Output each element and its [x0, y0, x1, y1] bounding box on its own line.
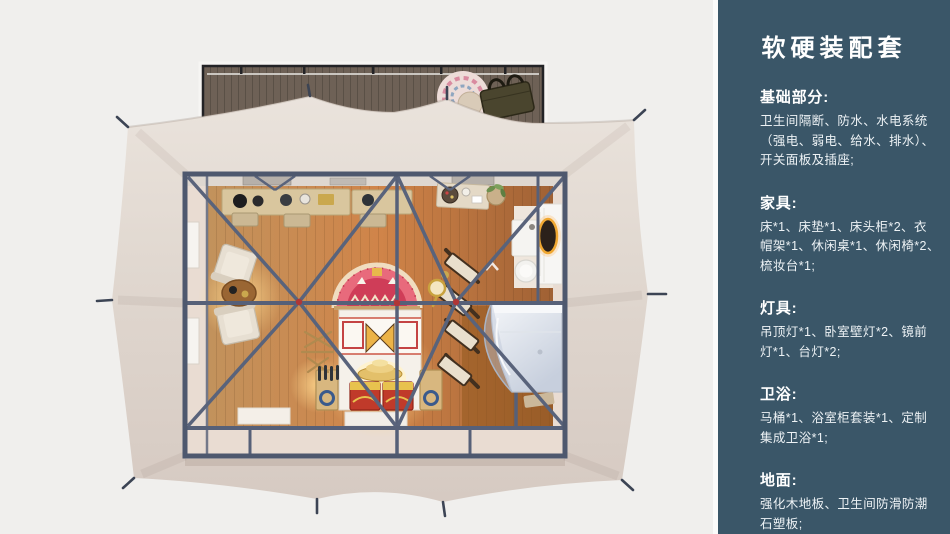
tent-render-svg: [0, 0, 713, 534]
section-text: 强化木地板、卫生间防滑防潮 石塑板;: [760, 495, 932, 534]
section-text: 床*1、床垫*1、床头柜*2、衣 帽架*1、休闲桌*1、休闲椅*2、 梳妆台*1…: [760, 218, 932, 277]
tent-top-view-render: [0, 0, 713, 534]
panel-title: 软硬装配套: [718, 28, 950, 63]
section-flooring: 地面: 强化木地板、卫生间防滑防潮 石塑板;: [760, 469, 932, 534]
section-heading: 卫浴:: [760, 383, 932, 404]
section-text: 卫生间隔断、防水、水电系统 （强电、弱电、给水、排水）、 开关面板及插座;: [760, 112, 932, 171]
vanity-mirror: [539, 219, 557, 253]
section-lighting: 灯具: 吊顶灯*1、卧室壁灯*2、镜前 灯*1、台灯*2;: [760, 297, 932, 362]
panel-body: 基础部分: 卫生间隔断、防水、水电系统 （强电、弱电、给水、排水）、 开关面板及…: [718, 63, 950, 534]
section-basics: 基础部分: 卫生间隔断、防水、水电系统 （强电、弱电、给水、排水）、 开关面板及…: [760, 86, 932, 171]
spec-panel: 软硬装配套 基础部分: 卫生间隔断、防水、水电系统 （强电、弱电、给水、排水）、…: [718, 0, 950, 534]
section-furniture: 家具: 床*1、床垫*1、床头柜*2、衣 帽架*1、休闲桌*1、休闲椅*2、 梳…: [760, 192, 932, 277]
room-shadow: [185, 459, 565, 466]
section-heading: 灯具:: [760, 297, 932, 318]
section-bathroom: 卫浴: 马桶*1、浴室柜套装*1、定制 集成卫浴*1;: [760, 383, 932, 448]
section-text: 吊顶灯*1、卧室壁灯*2、镜前 灯*1、台灯*2;: [760, 323, 932, 362]
section-heading: 基础部分:: [760, 86, 932, 107]
screenshot-root: 软硬装配套 基础部分: 卫生间隔断、防水、水电系统 （强电、弱电、给水、排水）、…: [0, 0, 950, 534]
section-text: 马桶*1、浴室柜套装*1、定制 集成卫浴*1;: [760, 409, 932, 448]
section-heading: 家具:: [760, 192, 932, 213]
section-heading: 地面:: [760, 469, 932, 490]
